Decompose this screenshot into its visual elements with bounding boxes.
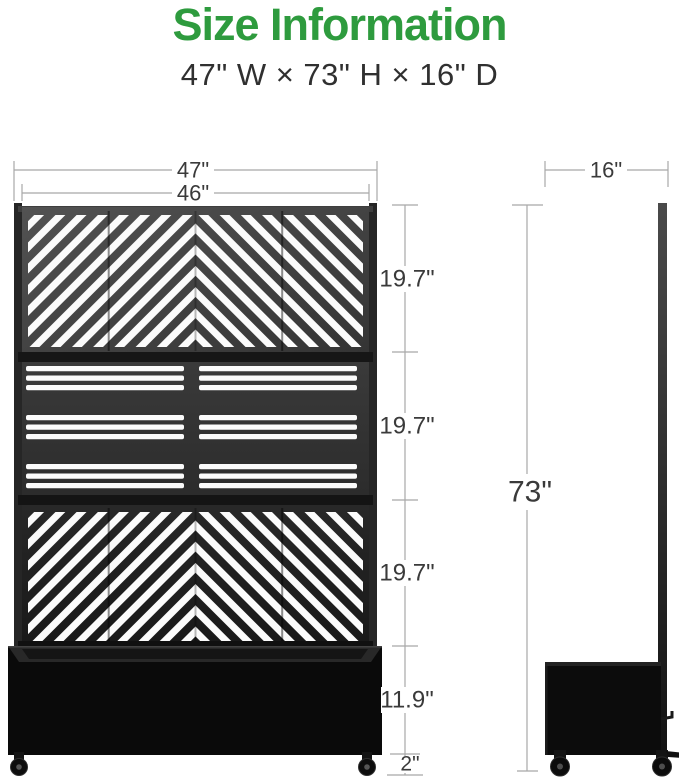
caster-wheel-front-right xyxy=(359,752,376,776)
chevron-section-bottom xyxy=(18,505,373,648)
dim-label-width-outer: 47" xyxy=(177,158,209,183)
frame-post-left xyxy=(14,203,22,650)
dim-label-caster-height: 2" xyxy=(400,753,419,776)
dim-label-depth: 16" xyxy=(590,158,622,183)
header: Size Information 47" W × 73" H × 16" D xyxy=(0,0,679,93)
size-diagram: 47" 46" 19.7" 19.7" 19.7" 11.9" 2" xyxy=(0,0,679,778)
dim-label-overall-height: 73" xyxy=(508,476,552,509)
planter-box-side xyxy=(545,662,672,755)
frame-post-right xyxy=(369,203,377,650)
panel-divider-2 xyxy=(18,495,373,505)
dimensions-subtitle: 47" W × 73" H × 16" D xyxy=(0,57,679,93)
dim-label-section-2: 19.7" xyxy=(379,413,434,440)
slat-section-middle xyxy=(22,362,369,495)
size-infographic: Size Information 47" W × 73" H × 16" D xyxy=(0,0,679,778)
dimension-front-heights: 19.7" 19.7" 19.7" 11.9" 2" xyxy=(379,205,434,776)
dim-label-section-3: 19.7" xyxy=(379,560,434,587)
chevron-section-top xyxy=(22,207,369,353)
dimension-front-width: 47" 46" xyxy=(14,158,377,206)
dimension-side-depth: 16" xyxy=(545,158,668,188)
front-view xyxy=(8,203,382,776)
panel-divider-1 xyxy=(18,352,373,362)
side-view xyxy=(545,203,679,776)
dim-label-planter-height: 11.9" xyxy=(380,687,433,714)
caster-wheel-side-right xyxy=(653,750,679,776)
dim-label-width-inner: 46" xyxy=(177,181,209,206)
caster-wheel-front-left xyxy=(11,752,28,776)
dim-label-section-1: 19.7" xyxy=(379,266,434,293)
planter-box-front xyxy=(8,646,382,755)
page-title: Size Information xyxy=(0,1,679,48)
